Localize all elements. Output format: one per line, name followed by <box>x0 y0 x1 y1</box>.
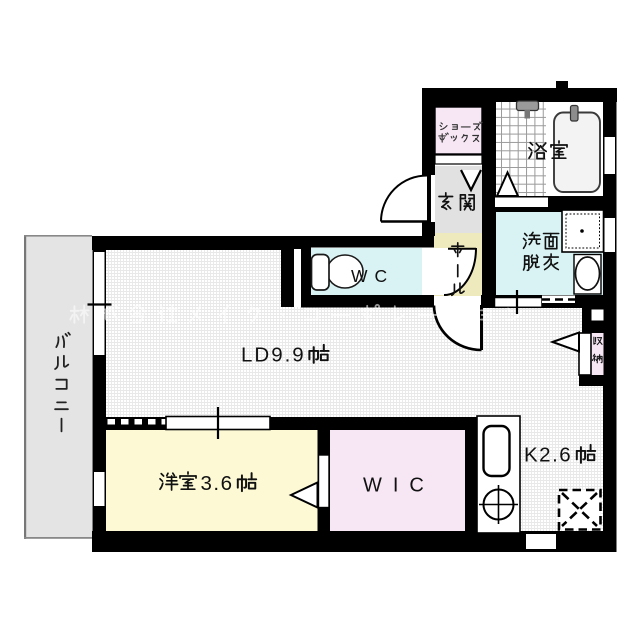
svg-text:WC: WC <box>351 266 394 286</box>
svg-text:WIC: WIC <box>363 475 435 497</box>
svg-text:3.6: 3.6 <box>201 472 234 495</box>
svg-text:LD9.9: LD9.9 <box>241 344 306 367</box>
svg-text:K2.6: K2.6 <box>524 444 572 467</box>
